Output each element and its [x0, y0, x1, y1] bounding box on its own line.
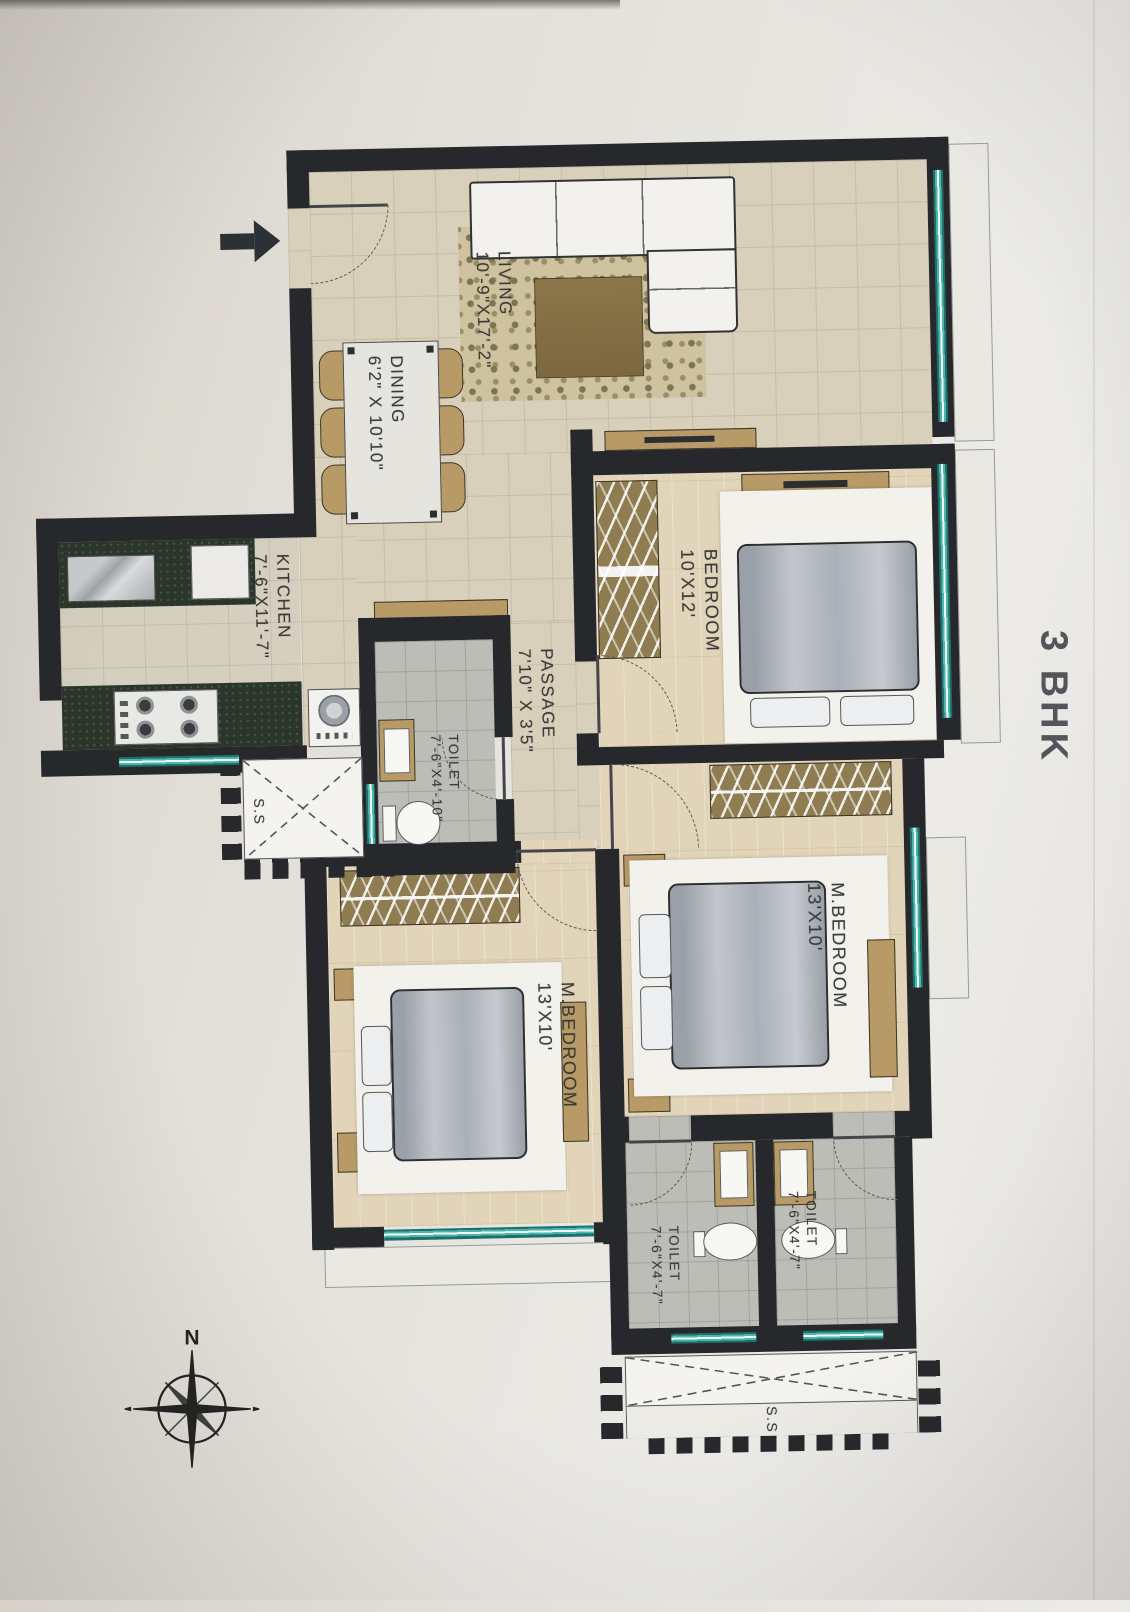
toilet-passage-washbasin [383, 728, 410, 774]
chajja-mbedroom-left-bottom [324, 1242, 612, 1288]
window-mbedroom-left [384, 1225, 594, 1240]
toilet-left-dim: 7'-6"X4'-7" [647, 1226, 666, 1306]
entry-arrow-head [254, 220, 281, 263]
mbedroom-right-dim: 13'X10' [802, 882, 828, 1009]
mbedroom-right-dresser [867, 939, 898, 1078]
compass-rose-icon: N [122, 1322, 262, 1482]
bedroom-bed [737, 540, 920, 694]
bedroom-wardrobe [595, 480, 661, 659]
chajja-bedroom-right [955, 449, 1001, 744]
wall-entry-stub [286, 150, 309, 208]
kitchen-name: KITCHEN [271, 554, 295, 660]
wall-toilets-top-b [691, 1112, 834, 1141]
window-toilet-left [671, 1332, 756, 1344]
wall-toilet-passage-right-upper [492, 615, 513, 737]
bedroom-pillow [750, 696, 831, 728]
dining-chair [439, 462, 466, 513]
ss-kitchen-teeth-bottom [244, 856, 394, 879]
plan-title: 3 BHK [1028, 630, 1077, 764]
mbedroom-left-name: M.BEDROOM [555, 982, 581, 1109]
mbedroom-left-bed [390, 987, 528, 1162]
dining-table-corner [430, 511, 437, 518]
ss-kitchen-label: S.S [250, 798, 269, 825]
wall-toilets-right [894, 1137, 916, 1333]
dining-table-corner [351, 512, 358, 519]
living-name: LIVING [493, 251, 518, 369]
dining-table-corner [347, 347, 354, 354]
stove-knobs [120, 697, 129, 739]
toilet-passage-name: TOILET [444, 734, 463, 823]
bedroom-dim: 10'X12' [675, 549, 701, 653]
kitchen-sink [67, 554, 156, 602]
toilet-right-label: TOILET 7'-6"X4'-7" [784, 1191, 821, 1271]
floorplan-photo: { "title": { "text": "3 BHK" }, "compass… [0, 0, 1130, 1600]
chajja-living-right [948, 143, 994, 442]
toilet-right-wc-tank [835, 1228, 848, 1254]
entry-arrow-bar [220, 233, 254, 250]
toilet-passage-dim: 7'-6"X4'-10" [427, 734, 446, 823]
ss-kitchen-teeth-left [220, 760, 242, 860]
window-toilet-passage [366, 784, 376, 844]
gas-stove [114, 689, 219, 745]
mbedroom-right-label: M.BEDROOM 13'X10' [802, 882, 851, 1009]
dining-label: DINING 6'2" X 10'10" [363, 355, 410, 471]
ss-bottom-band: S.S [627, 1400, 918, 1439]
bedroom-label: BEDROOM 10'X12' [675, 549, 724, 653]
toilet-left-name: TOILET [664, 1226, 683, 1306]
entry-threshold [288, 208, 312, 288]
dining-name: DINING [385, 355, 410, 471]
living-dim: 10'-9"X17'-2" [470, 251, 495, 369]
coffee-table [534, 276, 644, 378]
toilet-passage-label: TOILET 7'-6"X4'-10" [427, 734, 464, 823]
wall-kitchen-left [36, 518, 62, 700]
window-toilet-right [803, 1329, 883, 1341]
kitchen-platform-board [191, 544, 250, 599]
bedroom-dresser-handle [783, 480, 847, 488]
sofa-chaise-section [647, 248, 739, 334]
mbedroom-right-pillow [638, 914, 671, 979]
mbedroom-left-dim: 13'X10' [532, 982, 558, 1109]
bedroom-pillow [840, 695, 915, 727]
dining-chair [321, 464, 348, 515]
passage-label: PASSAGE 7'10" X 3'5" [513, 648, 559, 754]
toilet-left-washbasin [719, 1150, 748, 1199]
mbedroom-left-pillow [361, 1026, 392, 1087]
living-label: LIVING 10'-9"X17'-2" [470, 251, 517, 369]
passage-dim: 7'10" X 3'5" [513, 648, 537, 753]
cross-dashed-icon [626, 1352, 919, 1406]
mbedroom-right-name: M.BEDROOM [825, 882, 851, 1009]
dining-chair [438, 405, 465, 456]
washing-machine-controls [317, 732, 353, 739]
compass-north-label: N [184, 1327, 199, 1350]
bedroom-name: BEDROOM [698, 549, 724, 653]
mbedroom-right-pillow [640, 986, 673, 1051]
toilet-passage-wc-tank [382, 805, 397, 841]
sofa-horizontal-section [469, 176, 737, 260]
dining-chair [437, 348, 464, 399]
ss-bottom-label: S.S [763, 1406, 782, 1433]
ss-bottom-teeth-left [600, 1359, 624, 1439]
mbedroom-left-label: M.BEDROOM 13'X10' [532, 982, 581, 1109]
toilet-right-dim: 7'-6"X4'-7" [784, 1191, 803, 1271]
kitchen-label: KITCHEN 7'-6"X11'-7" [249, 554, 295, 660]
service-slab-bottom: S.S [625, 1351, 919, 1439]
ss-bottom-teeth-right [918, 1352, 942, 1432]
kitchen-dim: 7'-6"X11'-7" [249, 554, 273, 660]
dining-chair [320, 407, 347, 458]
entry-arrow-icon [220, 220, 285, 263]
toilet-right-name: TOILET [802, 1191, 821, 1271]
dining-table-corner [426, 346, 433, 353]
toilet-left-label: TOILET 7'-6"X4'-7" [647, 1226, 684, 1306]
mbedroom-right-wardrobe [709, 761, 892, 819]
mbedroom-left-pillow [362, 1092, 393, 1153]
wall-toilets-top-c [895, 1111, 913, 1137]
chajja-mbedroom-right [926, 837, 969, 1000]
wall-toilets-top-a [607, 1117, 630, 1143]
wall-toilet-passage-top [358, 615, 508, 642]
dining-dim: 6'2" X 10'10" [363, 356, 388, 472]
wall-mbedroom-left-bottom-a [312, 1227, 384, 1249]
passage-name: PASSAGE [535, 648, 559, 753]
dining-chair [319, 350, 346, 401]
